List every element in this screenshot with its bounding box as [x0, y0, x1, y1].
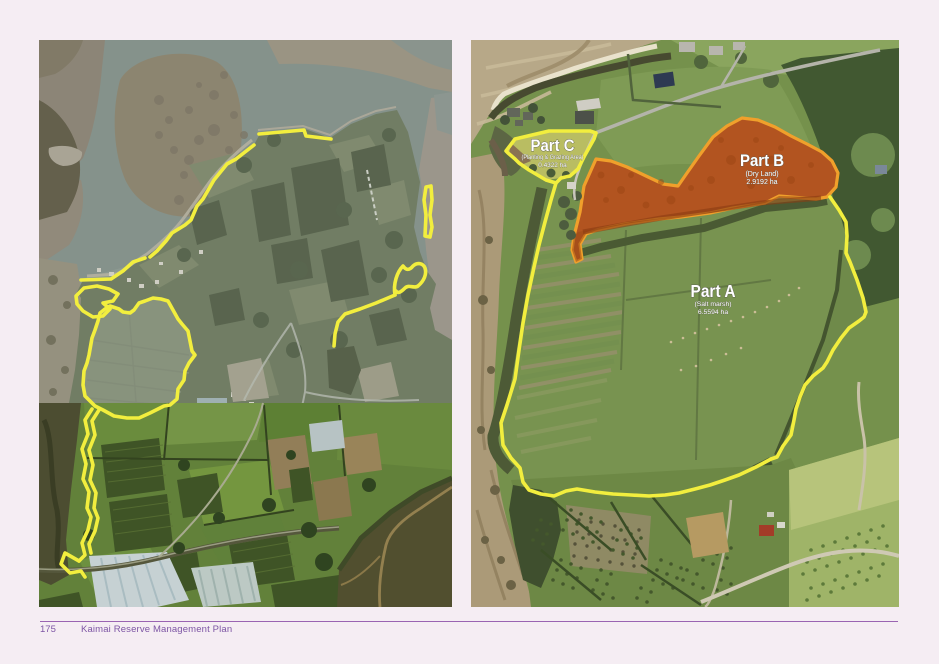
svg-text:(Salt marsh): (Salt marsh) — [694, 301, 731, 308]
svg-text:(Planting & Grazing Area): (Planting & Grazing Area) — [522, 154, 584, 161]
svg-text:Part C: Part C — [531, 136, 575, 155]
svg-text:Part B: Part B — [740, 151, 784, 170]
svg-text:Part A: Part A — [691, 281, 736, 301]
svg-text:(Dry Land): (Dry Land) — [745, 171, 778, 178]
svg-text:0.4322 ha: 0.4322 ha — [538, 162, 567, 169]
svg-text:2.9192 ha: 2.9192 ha — [746, 179, 777, 186]
svg-text:6.5594 ha: 6.5594 ha — [698, 309, 728, 316]
